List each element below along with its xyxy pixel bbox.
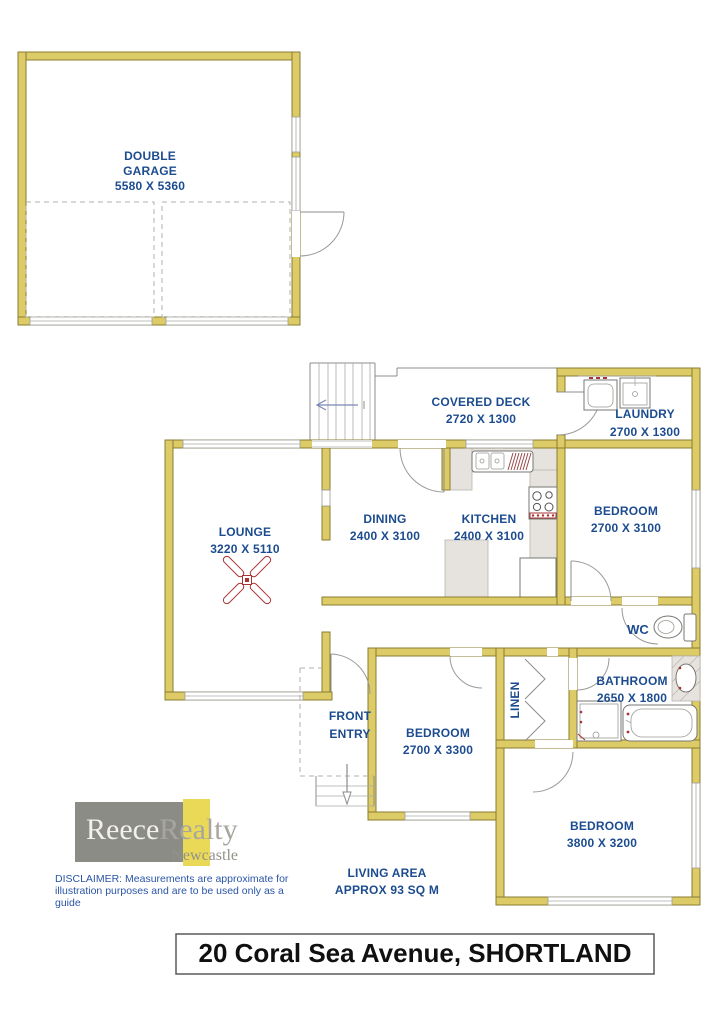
lounge-dining-cased-opening [322,490,330,506]
logo-brand-text: ReeceRealty [86,813,238,846]
bedroom-bottom-door-opening [535,740,573,748]
laundry-fixtures [578,376,656,410]
garage-plan: DOUBLE GARAGE 5580 X 5360 [18,52,344,325]
front-door-swing [330,654,370,694]
bathroom-door-opening [569,658,577,690]
stove-icon [529,487,557,519]
bedroom-mid-label: BEDROOM [406,726,470,740]
bedroom-bottom-label: BEDROOM [570,819,634,833]
kitchen-fridge-space [520,558,556,597]
entry-steps [316,764,374,806]
bedroom-top-door-opening [571,597,611,605]
front-entry-label-line2: ENTRY [329,727,370,741]
disclaimer-line1: DISCLAIMER: Measurements are approximate… [55,873,289,885]
wc-door-opening [622,597,658,605]
deck-door-swing [400,448,444,492]
living-area-line1: LIVING AREA [347,866,426,880]
garage-label-line2: GARAGE [123,164,177,178]
garage-bay-left [26,202,154,317]
disclaimer: DISCLAIMER: Measurements are approximate… [55,873,289,909]
linen-bifold-doors [525,659,545,741]
deck-dims: 2720 X 1300 [446,412,516,426]
house-plan: COVERED DECK 2720 X 1300 LAUNDRY 2700 X … [165,363,700,905]
dining-label: DINING [363,512,406,526]
covered-deck-boundary [375,368,557,376]
bedroom-top-label: BEDROOM [594,504,658,518]
bedroom-mid-dims: 2700 X 3300 [403,743,473,757]
logo-city-text: Newcastle [171,847,238,864]
kitchen-bench-left [448,448,472,490]
living-area-line2: APPROX 93 SQ M [335,883,439,897]
dining-dims: 2400 X 3100 [350,529,420,543]
laundry-dims: 2700 X 1300 [610,425,680,439]
bathroom-label: BATHROOM [596,674,667,688]
bedroom-bottom-door-swing [533,752,573,792]
garage-bay-right [162,202,290,317]
wc-label: WC [627,622,649,637]
deck-door-opening [398,440,446,448]
front-entry-label-line1: FRONT [329,709,372,723]
bedroom-top-door-swing [571,561,611,601]
lounge-label: LOUNGE [219,525,272,539]
disclaimer-line2: illustration purposes and are to be used… [55,885,284,897]
kitchen-pantry [445,540,488,598]
bedroom-bottom-dims: 3800 X 3200 [567,836,637,850]
bedroom-mid-door-swing [450,656,482,688]
linen-label: LINEN [508,682,522,719]
kitchen-label: KITCHEN [462,512,517,526]
garage-dims: 5580 X 5360 [115,179,185,193]
washing-machine-icon [584,380,617,410]
toilet-cistern [684,614,696,641]
rear-stairs [310,363,375,440]
bathroom-dims: 2650 X 1800 [597,691,667,705]
kitchen-dims: 2400 X 3100 [454,529,524,543]
agency-logo: ReeceRealty Newcastle [75,799,238,866]
garage-door-swing [300,212,344,256]
garage-door-opening [292,211,300,257]
stair-direction-arrow [317,400,364,410]
floorplan-page: DOUBLE GARAGE 5580 X 5360 [0,0,724,1024]
laundry-label: LAUNDRY [615,407,675,421]
deck-label: COVERED DECK [431,395,530,409]
hall-opening [547,648,558,656]
address-banner: 20 Coral Sea Avenue, SHORTLAND [176,934,654,974]
living-area-note: LIVING AREA APPROX 93 SQ M [335,866,439,897]
disclaimer-line3: guide [55,897,81,909]
address-text: 20 Coral Sea Avenue, SHORTLAND [199,938,632,968]
lounge-ceiling-fan [222,555,272,605]
garage-label-line1: DOUBLE [124,149,176,163]
lounge-dims: 3220 X 5110 [210,542,280,556]
bedroom-top-dims: 2700 X 3100 [591,521,661,535]
wc-fixtures [654,614,696,641]
bedroom-mid-door-opening [450,648,482,656]
floorplan-drawing: DOUBLE GARAGE 5580 X 5360 [0,0,724,1024]
